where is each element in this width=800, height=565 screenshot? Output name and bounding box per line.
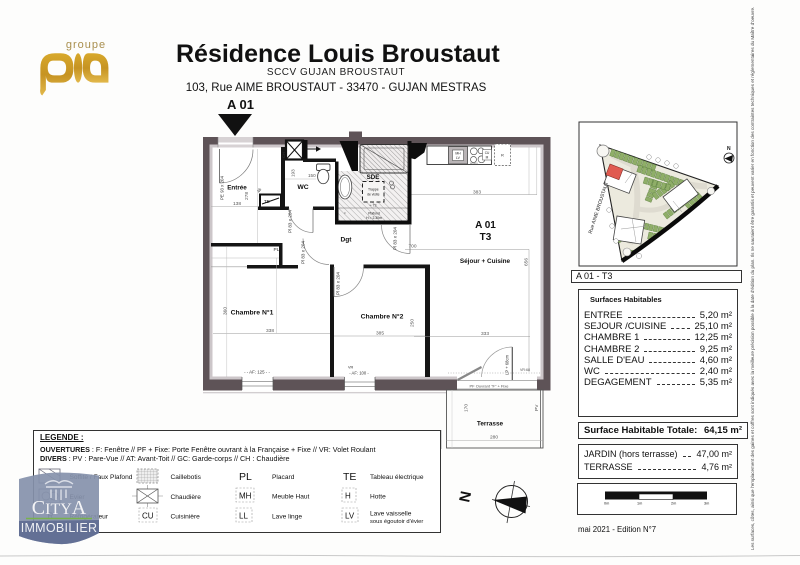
svg-text:333: 333 <box>481 331 489 337</box>
svg-text:PL: PL <box>274 247 280 253</box>
svg-text:278: 278 <box>244 192 250 200</box>
svg-text:138: 138 <box>233 201 241 207</box>
svg-text:CH: CH <box>281 152 286 158</box>
svg-text:Chambre N°1: Chambre N°1 <box>231 309 274 317</box>
svg-text:N: N <box>727 146 731 152</box>
svg-text:de visite: de visite <box>367 193 380 197</box>
svg-text:LP + 68cm: LP + 68cm <box>505 354 510 375</box>
svg-text:0m: 0m <box>604 502 609 506</box>
svg-text:LV: LV <box>345 512 355 521</box>
svg-text:Dgt: Dgt <box>341 237 353 244</box>
svg-text:Pl 83 x 204: Pl 83 x 204 <box>301 241 306 264</box>
svg-text:Entrée: Entrée <box>227 185 247 192</box>
svg-text:- AF: 100 -: - AF: 100 - <box>349 371 369 376</box>
svg-text:250: 250 <box>410 319 416 327</box>
svg-text:Hotte: Hotte <box>370 494 386 501</box>
svg-text:H: H <box>345 492 351 501</box>
svg-text:Lave linge: Lave linge <box>272 514 302 521</box>
svg-text:60x60: 60x60 <box>470 161 478 165</box>
svg-text:VR:68: VR:68 <box>520 368 530 372</box>
svg-text:150: 150 <box>308 173 316 178</box>
svg-text:PF Ouvrant "F" + Fixe: PF Ouvrant "F" + Fixe <box>470 384 510 389</box>
svg-text:A 01: A 01 <box>475 220 496 231</box>
svg-text:3m: 3m <box>704 502 709 506</box>
svg-text:H = 2.30m: H = 2.30m <box>366 216 382 220</box>
svg-text:Plafond: Plafond <box>368 212 380 216</box>
svg-text:PV: PV <box>534 404 540 411</box>
svg-text:1m: 1m <box>637 502 642 506</box>
svg-text:CITYA: CITYA <box>32 497 87 519</box>
svg-text:WC: WC <box>297 184 308 191</box>
svg-text:R: R <box>501 153 504 158</box>
svg-text:TE: TE <box>343 471 356 483</box>
svg-text:Pl 83 x 204: Pl 83 x 204 <box>336 272 341 295</box>
svg-text:Cuisinière: Cuisinière <box>171 514 201 521</box>
svg-text:Pl 83 x 204: Pl 83 x 204 <box>393 227 398 250</box>
svg-text:Trappe: Trappe <box>368 188 379 192</box>
svg-text:360: 360 <box>223 307 229 315</box>
svg-text:VR: VR <box>348 366 354 370</box>
svg-text:170: 170 <box>464 404 470 412</box>
svg-text:≈ 73: ≈ 73 <box>370 204 377 208</box>
svg-text:Meuble Haut: Meuble Haut <box>272 494 310 501</box>
svg-text:TE: TE <box>264 199 270 204</box>
svg-text:CU: CU <box>485 151 490 155</box>
svg-text:Séjour + Cuisine: Séjour + Cuisine <box>460 258 511 265</box>
svg-text:LL: LL <box>239 512 248 521</box>
svg-text:MH: MH <box>455 152 461 156</box>
svg-text:PL: PL <box>239 471 252 483</box>
svg-text:280: 280 <box>490 435 498 441</box>
svg-text:Terrasse: Terrasse <box>477 421 504 428</box>
svg-text:M: M <box>486 155 489 159</box>
svg-text:Lave vaisselle: Lave vaisselle <box>370 511 412 518</box>
svg-text:383: 383 <box>473 189 481 195</box>
svg-text:338: 338 <box>266 328 274 334</box>
svg-text:385: 385 <box>376 331 384 337</box>
svg-text:Les surfaces, côtes, ainsi que: Les surfaces, côtes, ainsi que l'emplace… <box>750 7 755 550</box>
svg-text:IMMOBILIER: IMMOBILIER <box>21 521 98 535</box>
svg-text:193: 193 <box>291 169 296 177</box>
svg-text:656: 656 <box>524 258 530 266</box>
svg-text:sous égoutoir d'évier: sous égoutoir d'évier <box>370 519 423 525</box>
svg-text:SDE: SDE <box>367 174 380 181</box>
svg-text:T3: T3 <box>480 232 492 243</box>
svg-text:N: N <box>456 490 475 504</box>
svg-text:CU: CU <box>142 512 154 521</box>
svg-text:≈: ≈ <box>344 211 346 215</box>
svg-text:PE 93 x 204: PE 93 x 204 <box>220 176 225 200</box>
svg-text:- - AF: 125 - -: - - AF: 125 - - <box>244 370 270 375</box>
svg-text:Chaudière: Chaudière <box>171 494 202 501</box>
svg-text:2m: 2m <box>671 502 676 506</box>
svg-text:Caillebotis: Caillebotis <box>171 474 202 481</box>
svg-text:Tableau électrique: Tableau électrique <box>370 474 424 481</box>
svg-text:Placard: Placard <box>272 474 295 481</box>
svg-text:MH: MH <box>239 492 252 501</box>
svg-text:Pl 83 x 204: Pl 83 x 204 <box>288 210 293 233</box>
svg-text:Chambre N°2: Chambre N°2 <box>361 313 404 321</box>
